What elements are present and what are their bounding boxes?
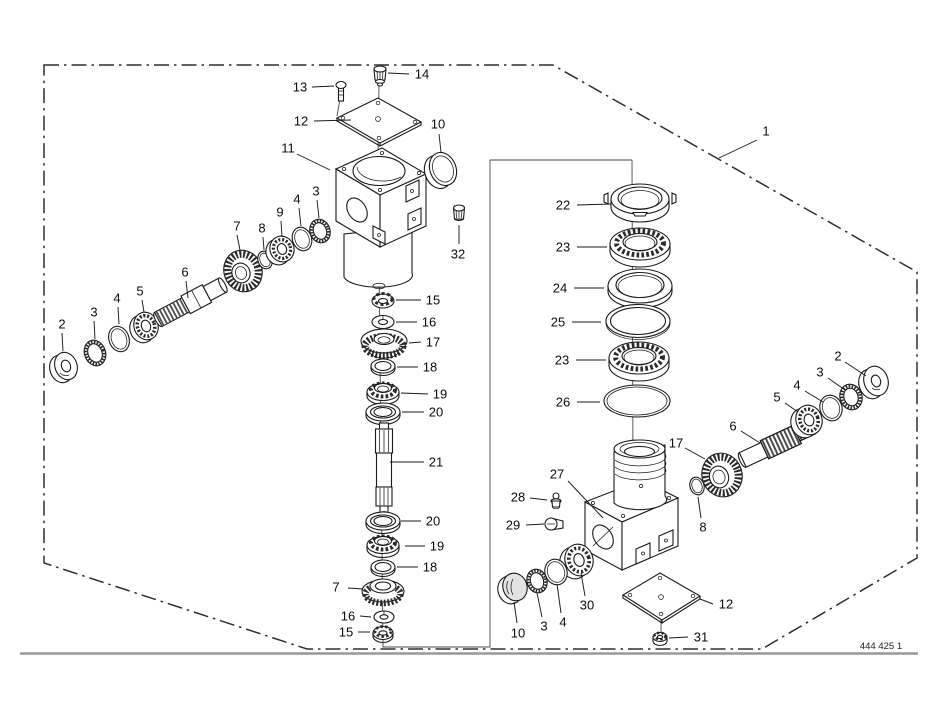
part-label-23: 23 xyxy=(556,240,570,255)
part-label-6: 6 xyxy=(181,265,188,280)
part-label-19: 19 xyxy=(430,539,444,554)
part-17-bevel-gear xyxy=(361,329,407,358)
part-label-8: 8 xyxy=(699,520,706,535)
part-label-6: 6 xyxy=(729,419,736,434)
part-label-28: 28 xyxy=(511,490,525,505)
callouts-layer: 1131412111032234567894315161718192021201… xyxy=(58,67,866,645)
callout-leader-4 xyxy=(118,307,119,324)
part-25-shim-ring xyxy=(606,305,670,340)
part-23-ball-bearing xyxy=(610,228,670,267)
callout-leader-2 xyxy=(845,362,866,376)
part-label-31: 31 xyxy=(694,630,708,645)
right-parts-stack xyxy=(604,184,676,417)
part-label-10: 10 xyxy=(511,626,525,641)
callout-leader-3 xyxy=(94,321,95,339)
callout-leader-10 xyxy=(514,602,517,623)
part-12-cover-plate xyxy=(623,573,700,623)
part-label-11: 11 xyxy=(281,141,295,156)
part-label-3: 3 xyxy=(540,619,547,634)
callout-leader-14 xyxy=(388,73,409,74)
callout-leader-6 xyxy=(741,431,760,443)
part-23-ball-bearing xyxy=(609,342,669,381)
machine-outline-border xyxy=(44,65,917,649)
part-2-washer xyxy=(46,349,81,386)
callout-leader-9 xyxy=(281,221,282,237)
part-label-4: 4 xyxy=(559,615,566,630)
part-20-seal xyxy=(366,403,400,425)
part-label-26: 26 xyxy=(556,395,570,410)
part-label-12: 12 xyxy=(719,597,733,612)
callout-leader-31 xyxy=(669,637,688,638)
callout-leader-1 xyxy=(719,140,757,158)
part-label-20: 20 xyxy=(429,405,443,420)
callout-leader-5 xyxy=(142,300,144,312)
part-11-gearbox-housing xyxy=(336,148,426,289)
part-29-plug xyxy=(545,518,563,530)
part-label-7: 7 xyxy=(332,580,339,595)
part-15-castle-nut xyxy=(372,294,394,309)
assembly-frame-line xyxy=(383,160,632,647)
callout-leader-8 xyxy=(263,237,264,250)
exploded-parts-diagram-page: 1131412111032234567894315161718192021201… xyxy=(0,0,950,725)
callout-leader-4 xyxy=(805,391,823,402)
part-18-ring xyxy=(371,359,395,376)
callout-leader-16 xyxy=(360,616,371,617)
part-20-seal xyxy=(366,512,400,534)
callout-leader-12 xyxy=(700,599,713,604)
callout-leader-5 xyxy=(785,403,798,412)
part-label-4: 4 xyxy=(293,192,300,207)
lower-housing-assembly xyxy=(494,440,700,646)
part-label-1: 1 xyxy=(762,124,769,139)
right-shaft-assembly xyxy=(688,363,892,502)
callout-leader-29 xyxy=(526,524,544,525)
callout-leader-17 xyxy=(685,448,705,459)
part-24-washer xyxy=(608,269,672,308)
part-label-18: 18 xyxy=(423,360,437,375)
part-label-17: 17 xyxy=(669,436,683,451)
callout-leader-3 xyxy=(537,593,542,617)
part-label-21: 21 xyxy=(429,455,443,470)
part-27-gearbox-housing xyxy=(585,440,678,570)
upper-housing-assembly xyxy=(336,66,465,289)
part-label-29: 29 xyxy=(506,518,520,533)
part-label-2: 2 xyxy=(58,317,65,332)
part-label-27: 27 xyxy=(550,467,564,482)
part-label-30: 30 xyxy=(580,598,594,613)
part-label-2: 2 xyxy=(834,349,841,364)
part-label-15: 15 xyxy=(426,293,440,308)
part-32-plug xyxy=(454,205,465,220)
part-label-25: 25 xyxy=(551,315,565,330)
part-label-14: 14 xyxy=(415,67,429,82)
drawing-number: 444 425 1 xyxy=(860,641,902,652)
part-19-taper-bearing xyxy=(367,537,399,558)
part-label-4: 4 xyxy=(793,378,800,393)
part-label-22: 22 xyxy=(556,198,570,213)
part-18-ring xyxy=(371,560,395,577)
part-label-23: 23 xyxy=(555,353,569,368)
part-label-16: 16 xyxy=(341,609,355,624)
part-label-8: 8 xyxy=(258,221,265,236)
callout-leader-8 xyxy=(698,497,701,518)
part-7-bevel-gear xyxy=(362,579,404,603)
part-13-screw xyxy=(336,82,346,102)
part-label-12: 12 xyxy=(294,114,308,129)
part-label-32: 32 xyxy=(451,247,465,262)
callout-leader-4 xyxy=(299,208,301,226)
part-12-cover-plate xyxy=(337,98,421,146)
part-19-taper-bearing xyxy=(367,384,399,405)
part-22-slotted-ring-nut xyxy=(604,184,676,222)
part-label-10: 10 xyxy=(431,117,445,132)
callout-leader-17 xyxy=(409,342,421,343)
callout-leader-7 xyxy=(237,235,240,250)
part-3-shim-ring xyxy=(81,337,110,369)
part-14-vent-plug xyxy=(374,66,386,86)
part-label-19: 19 xyxy=(433,387,447,402)
part-label-13: 13 xyxy=(293,80,307,95)
part-label-5: 5 xyxy=(773,390,780,405)
callout-leader-2 xyxy=(62,333,63,351)
callout-leader-28 xyxy=(530,498,547,500)
part-16-lock-washer xyxy=(374,611,394,623)
part-label-18: 18 xyxy=(423,560,437,575)
part-label-3: 3 xyxy=(312,184,319,199)
part-label-5: 5 xyxy=(136,284,143,299)
callout-leader-13 xyxy=(312,86,334,87)
part-label-4: 4 xyxy=(113,291,120,306)
callout-leader-3 xyxy=(828,378,845,390)
part-label-9: 9 xyxy=(276,205,283,220)
part-10-cap xyxy=(494,570,530,607)
part-label-20: 20 xyxy=(426,514,440,529)
callout-leader-3 xyxy=(317,200,319,218)
part-label-7: 7 xyxy=(233,219,240,234)
part-label-16: 16 xyxy=(422,315,436,330)
part-28-grease-fitting xyxy=(551,493,561,509)
callout-leader-22 xyxy=(577,204,611,205)
part-label-24: 24 xyxy=(553,281,567,296)
part-21-output-shaft xyxy=(376,423,393,515)
callout-leader-10 xyxy=(439,134,441,152)
part-16-lock-washer xyxy=(372,316,394,329)
part-label-3: 3 xyxy=(816,365,823,380)
part-6-splined-shaft xyxy=(151,275,230,330)
callout-leader-11 xyxy=(297,154,330,170)
part-label-15: 15 xyxy=(339,625,353,640)
callout-leader-7 xyxy=(348,588,363,589)
left-shaft-assembly xyxy=(46,216,334,386)
part-26-snap-ring xyxy=(604,385,670,417)
part-label-3: 3 xyxy=(90,305,97,320)
part-label-17: 17 xyxy=(426,335,440,350)
callout-leader-19 xyxy=(401,393,428,394)
middle-shaft-stack xyxy=(361,294,407,643)
exploded-parts-diagram: 1131412111032234567894315161718192021201… xyxy=(0,0,950,725)
part-4-ring xyxy=(105,323,133,354)
part-31-nut xyxy=(653,633,667,646)
callout-leader-4 xyxy=(557,584,561,613)
